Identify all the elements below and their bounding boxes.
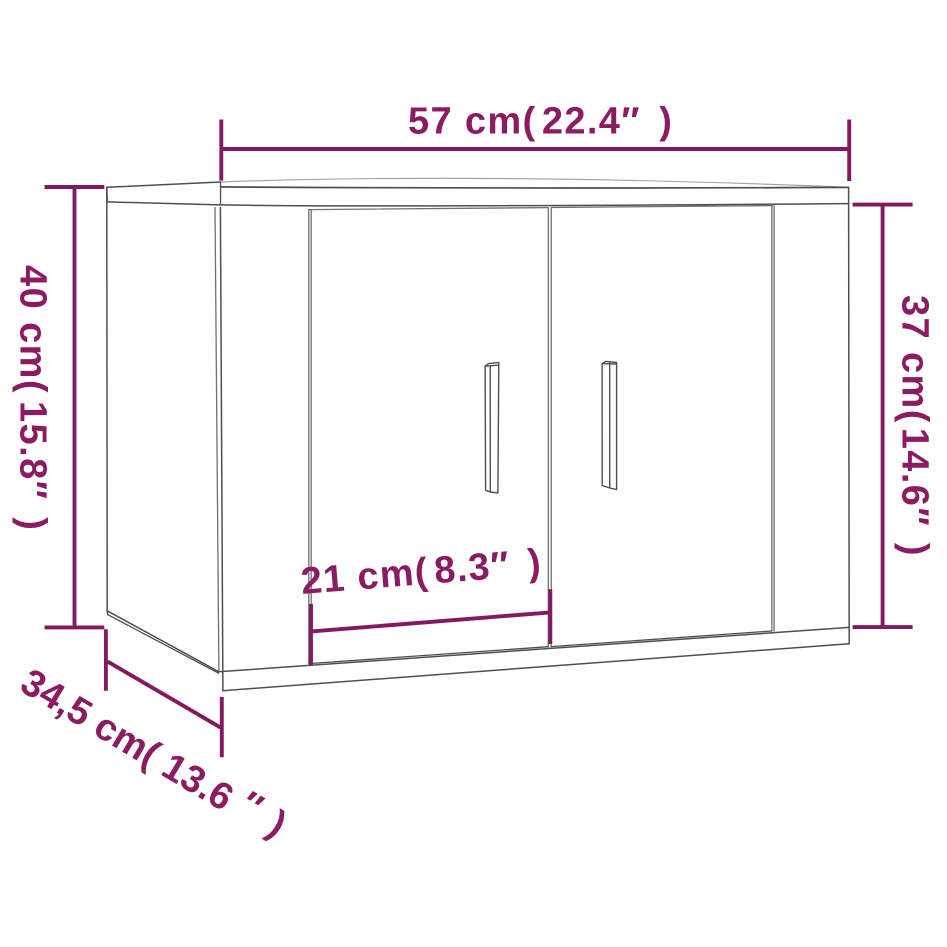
svg-text:40 cm( 15.8″ ): 40 cm( 15.8″ ) <box>11 265 53 531</box>
svg-text:37 cm( 14.6″ ): 37 cm( 14.6″ ) <box>894 295 936 557</box>
svg-text:57 cm( 22.4″ ): 57 cm( 22.4″ ) <box>408 101 673 143</box>
